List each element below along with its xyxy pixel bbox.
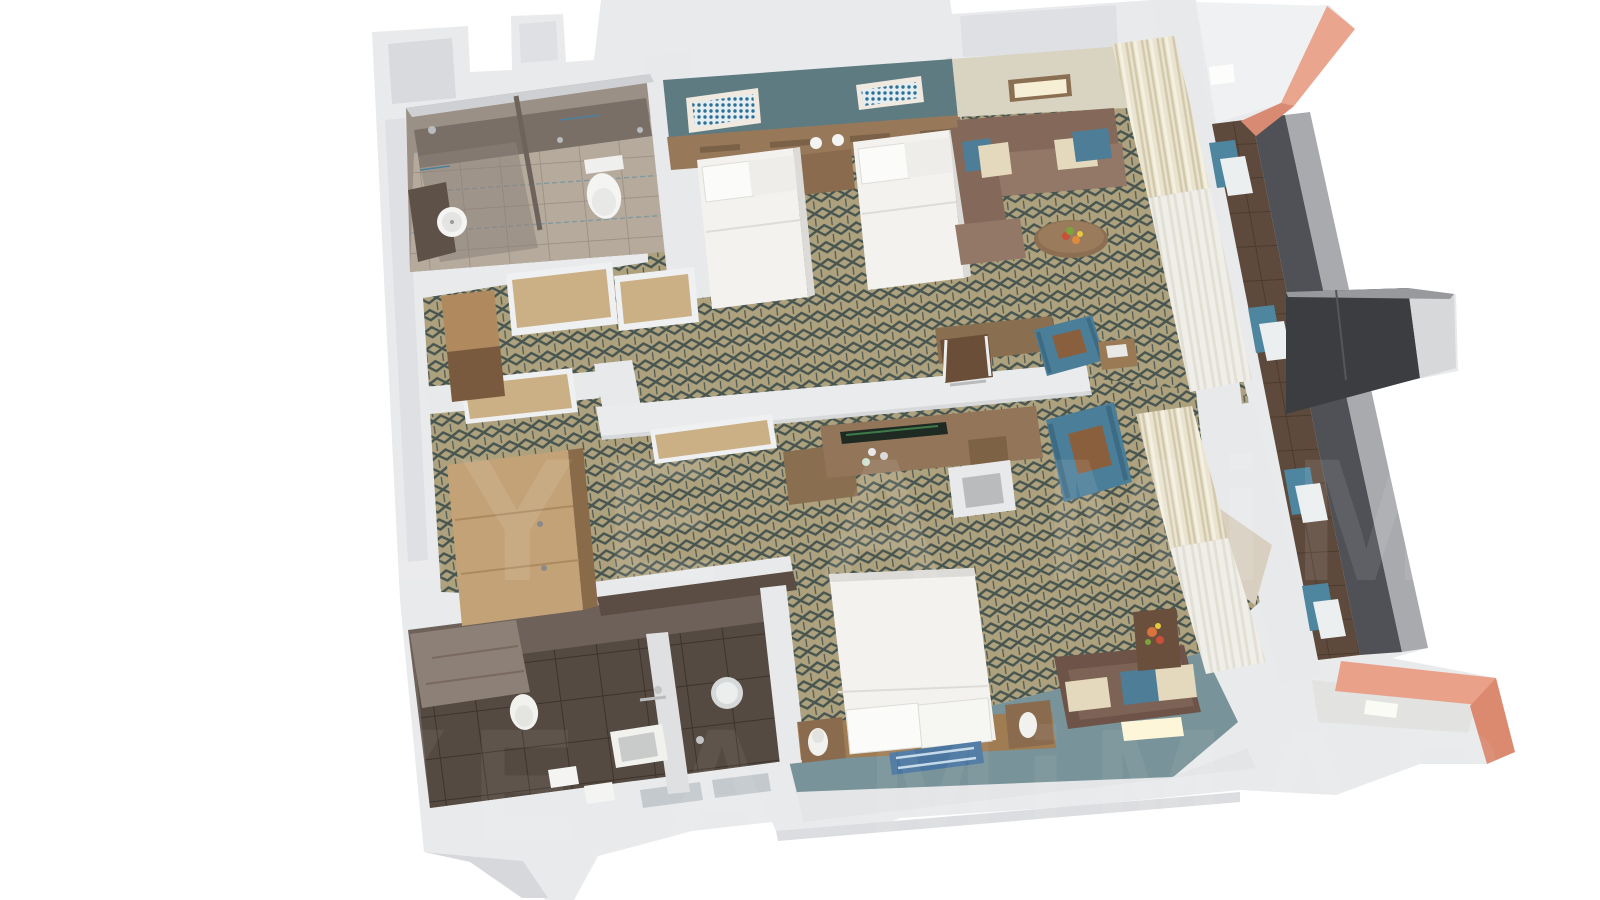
svg-text:LYE A MiMARLI: LYE A MiMARLI	[340, 423, 1600, 618]
svg-text:YE A MiMAR: YE A MiMAR	[340, 695, 1528, 874]
